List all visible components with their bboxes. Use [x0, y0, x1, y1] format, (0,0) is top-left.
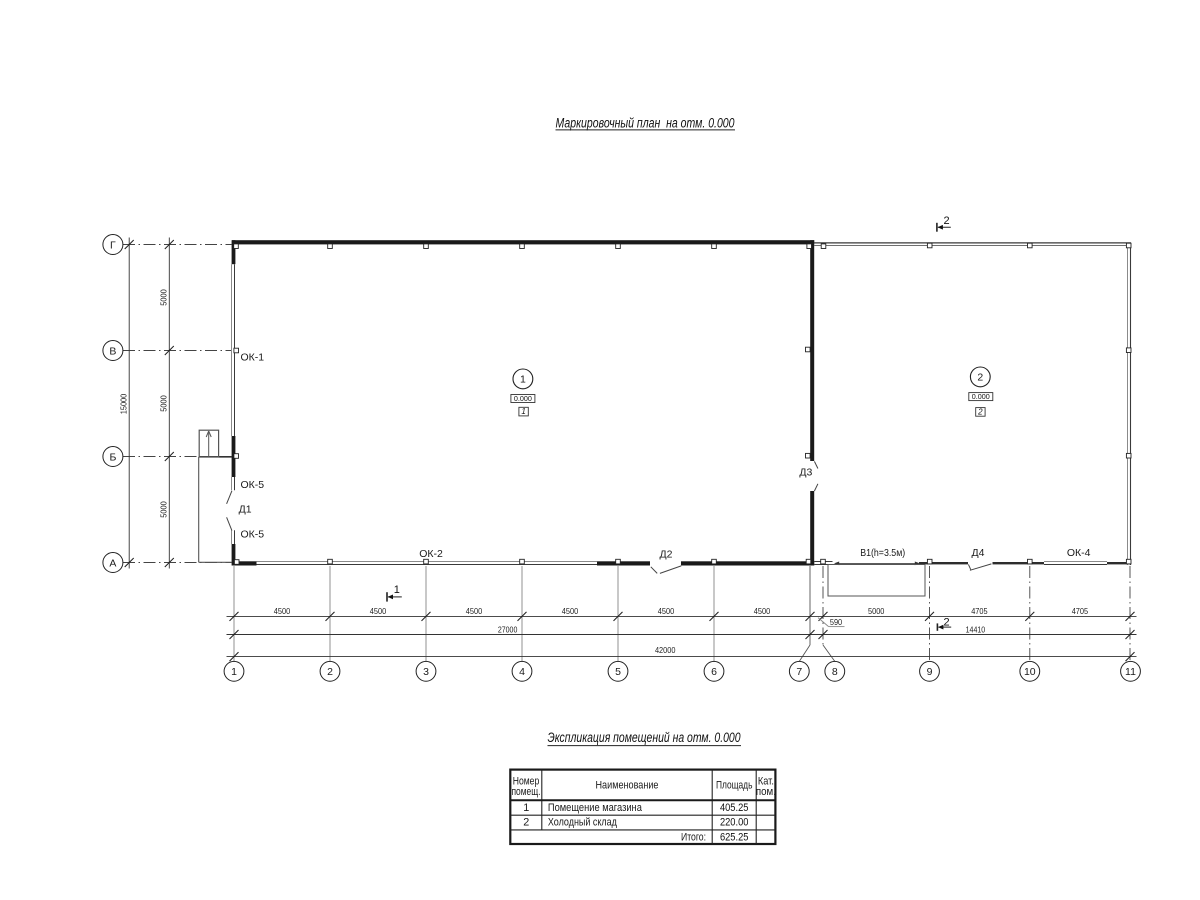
svg-text:Холодный склад: Холодный склад — [548, 817, 618, 829]
svg-text:ОК-4: ОК-4 — [1067, 547, 1091, 559]
svg-text:4500: 4500 — [562, 606, 579, 616]
svg-text:10: 10 — [1024, 666, 1036, 678]
svg-text:4500: 4500 — [466, 606, 483, 616]
svg-text:Экспликация помещений на отм.: Экспликация помещений на отм. 0.000 — [548, 730, 741, 745]
svg-text:Маркировочный план на отм. 0.: Маркировочный план на отм. 0.000 — [556, 116, 735, 131]
svg-text:4705: 4705 — [1072, 606, 1089, 616]
svg-text:11: 11 — [1125, 666, 1136, 678]
svg-text:2: 2 — [977, 408, 983, 417]
svg-text:3: 3 — [423, 666, 429, 678]
svg-text:1: 1 — [231, 666, 237, 678]
svg-text:5000: 5000 — [159, 501, 169, 518]
svg-text:4500: 4500 — [754, 606, 771, 616]
svg-text:405.25: 405.25 — [720, 802, 749, 814]
svg-text:Помещение магазина: Помещение магазина — [548, 802, 642, 814]
svg-text:590: 590 — [830, 617, 843, 627]
svg-text:4500: 4500 — [370, 606, 387, 616]
svg-text:Д3: Д3 — [799, 467, 812, 479]
svg-text:пом.: пом. — [756, 786, 776, 798]
svg-text:625.25: 625.25 — [720, 831, 749, 843]
svg-text:2: 2 — [944, 616, 950, 628]
svg-text:В1(h=3.5м): В1(h=3.5м) — [860, 547, 905, 559]
svg-text:6: 6 — [711, 666, 717, 678]
svg-text:5000: 5000 — [159, 289, 169, 306]
svg-text:7: 7 — [796, 666, 802, 678]
svg-text:1: 1 — [520, 374, 526, 386]
svg-text:Наименование: Наименование — [596, 779, 659, 791]
svg-text:Б: Б — [109, 451, 116, 463]
svg-text:220.00: 220.00 — [720, 817, 749, 829]
svg-text:1: 1 — [394, 584, 400, 596]
svg-text:4500: 4500 — [658, 606, 675, 616]
svg-text:ОК-5: ОК-5 — [241, 529, 265, 541]
svg-text:2: 2 — [977, 372, 983, 384]
svg-text:1: 1 — [523, 802, 529, 814]
svg-text:Площадь: Площадь — [716, 779, 753, 791]
svg-text:Г: Г — [110, 239, 116, 251]
svg-text:ОК-1: ОК-1 — [241, 352, 265, 364]
svg-text:помещ.: помещ. — [512, 786, 541, 798]
svg-text:2: 2 — [523, 817, 529, 829]
svg-text:9: 9 — [927, 666, 933, 678]
svg-text:4705: 4705 — [971, 606, 988, 616]
svg-text:42000: 42000 — [655, 645, 676, 655]
svg-text:ОК-2: ОК-2 — [419, 548, 443, 560]
svg-text:5: 5 — [615, 666, 621, 678]
svg-text:Итого:: Итого: — [681, 831, 706, 843]
svg-text:Д2: Д2 — [660, 548, 673, 560]
svg-text:0.000: 0.000 — [514, 394, 532, 403]
svg-text:14410: 14410 — [966, 624, 986, 634]
svg-text:Д1: Д1 — [239, 504, 252, 516]
svg-text:2: 2 — [943, 215, 949, 227]
svg-text:2: 2 — [327, 666, 333, 678]
svg-text:5000: 5000 — [159, 395, 169, 412]
svg-text:4: 4 — [519, 666, 525, 678]
svg-text:ОК-5: ОК-5 — [241, 479, 265, 491]
svg-text:5000: 5000 — [868, 606, 885, 616]
svg-text:27000: 27000 — [498, 624, 518, 634]
svg-text:В: В — [109, 345, 116, 357]
svg-text:15000: 15000 — [118, 393, 128, 414]
svg-text:Д4: Д4 — [972, 547, 985, 559]
svg-text:А: А — [109, 557, 116, 569]
svg-text:4500: 4500 — [274, 606, 291, 616]
svg-text:8: 8 — [832, 666, 838, 678]
svg-text:1: 1 — [521, 407, 525, 416]
svg-text:0.000: 0.000 — [972, 392, 990, 401]
